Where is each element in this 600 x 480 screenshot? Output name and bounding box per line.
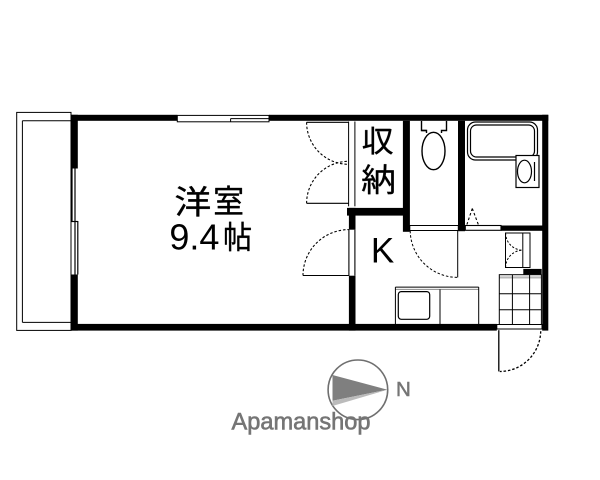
svg-text:K: K	[371, 232, 394, 271]
svg-text:N: N	[396, 378, 411, 401]
svg-text:9.4: 9.4	[169, 217, 219, 258]
svg-text:Apamanshop: Apamanshop	[232, 409, 371, 435]
